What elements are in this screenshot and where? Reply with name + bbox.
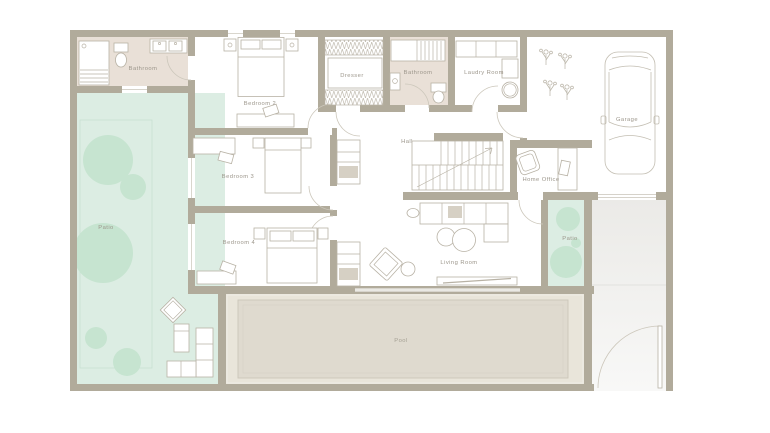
outdoor-sofa xyxy=(167,361,196,377)
door-opening xyxy=(520,112,527,138)
tree xyxy=(120,174,146,200)
room-label-bedroom-3: Bedroom 3 xyxy=(222,174,254,180)
room-label-bathroom-2: Bathroom xyxy=(404,70,433,76)
door-opening xyxy=(336,105,360,112)
wardrobe xyxy=(325,40,383,55)
door-opening xyxy=(405,105,429,112)
nightstand xyxy=(224,39,236,51)
gate-leaf xyxy=(658,326,662,388)
desk xyxy=(193,138,235,154)
washer xyxy=(502,82,518,98)
tree xyxy=(85,327,107,349)
door-opening xyxy=(330,216,337,240)
room-label-garage: Garage xyxy=(616,117,638,123)
floor-plan: Bathroom Bedroom 2 Dresser Bathroom Laud… xyxy=(0,0,770,433)
sofa-tray xyxy=(448,206,462,218)
toilet-tank xyxy=(114,43,128,52)
door-opening xyxy=(330,186,337,210)
sink xyxy=(390,73,400,90)
lounger xyxy=(174,324,189,352)
closet-shelf xyxy=(339,166,358,178)
tree xyxy=(73,223,133,283)
pillow xyxy=(293,231,314,241)
door-opening xyxy=(518,192,543,200)
side-table xyxy=(407,209,419,218)
tree xyxy=(113,348,141,376)
nightstand xyxy=(318,228,328,239)
door-opening xyxy=(472,105,498,112)
pillow xyxy=(270,231,291,241)
room-label-bedroom-4: Bedroom 4 xyxy=(223,240,256,246)
nightstand xyxy=(286,39,298,51)
room-label-dresser: Dresser xyxy=(340,73,363,79)
cabinets xyxy=(456,41,517,57)
sofa-chaise xyxy=(484,224,508,242)
room-label-patio-left: Patio xyxy=(98,225,113,231)
bed xyxy=(265,138,301,193)
staircase xyxy=(412,141,503,190)
coffee-table xyxy=(437,228,455,246)
nightstand xyxy=(301,138,311,148)
room-label-patio-right: Patio xyxy=(562,236,577,242)
closet-shelf xyxy=(339,268,358,280)
car xyxy=(601,52,659,174)
room-label-laundry: Laudry Room xyxy=(464,70,504,76)
room-label-hall: Hall xyxy=(401,139,413,145)
tree xyxy=(550,246,582,278)
room-label-bedroom-2: Bedroom 2 xyxy=(244,101,276,107)
outdoor-sofa xyxy=(196,328,213,377)
pillow xyxy=(241,40,260,49)
wardrobe xyxy=(325,90,383,105)
room-label-pool: Pool xyxy=(394,338,407,344)
tree xyxy=(556,207,580,231)
coffee-table xyxy=(453,229,476,252)
garage-door xyxy=(598,192,656,200)
room-label-living-room: Living Room xyxy=(440,260,477,266)
room-label-home-office: Home Office xyxy=(522,177,559,183)
laundry-counter xyxy=(502,59,518,78)
side-table xyxy=(401,262,415,276)
nightstand xyxy=(253,138,264,148)
toilet xyxy=(116,53,127,67)
nightstand xyxy=(254,228,265,239)
door-opening xyxy=(188,56,195,80)
room-label-bathroom-1: Bathroom xyxy=(129,66,158,72)
door-opening xyxy=(308,128,332,135)
toilet xyxy=(433,91,444,103)
floor-plan-svg: Bathroom Bedroom 2 Dresser Bathroom Laud… xyxy=(0,0,770,433)
pillow xyxy=(262,40,281,49)
